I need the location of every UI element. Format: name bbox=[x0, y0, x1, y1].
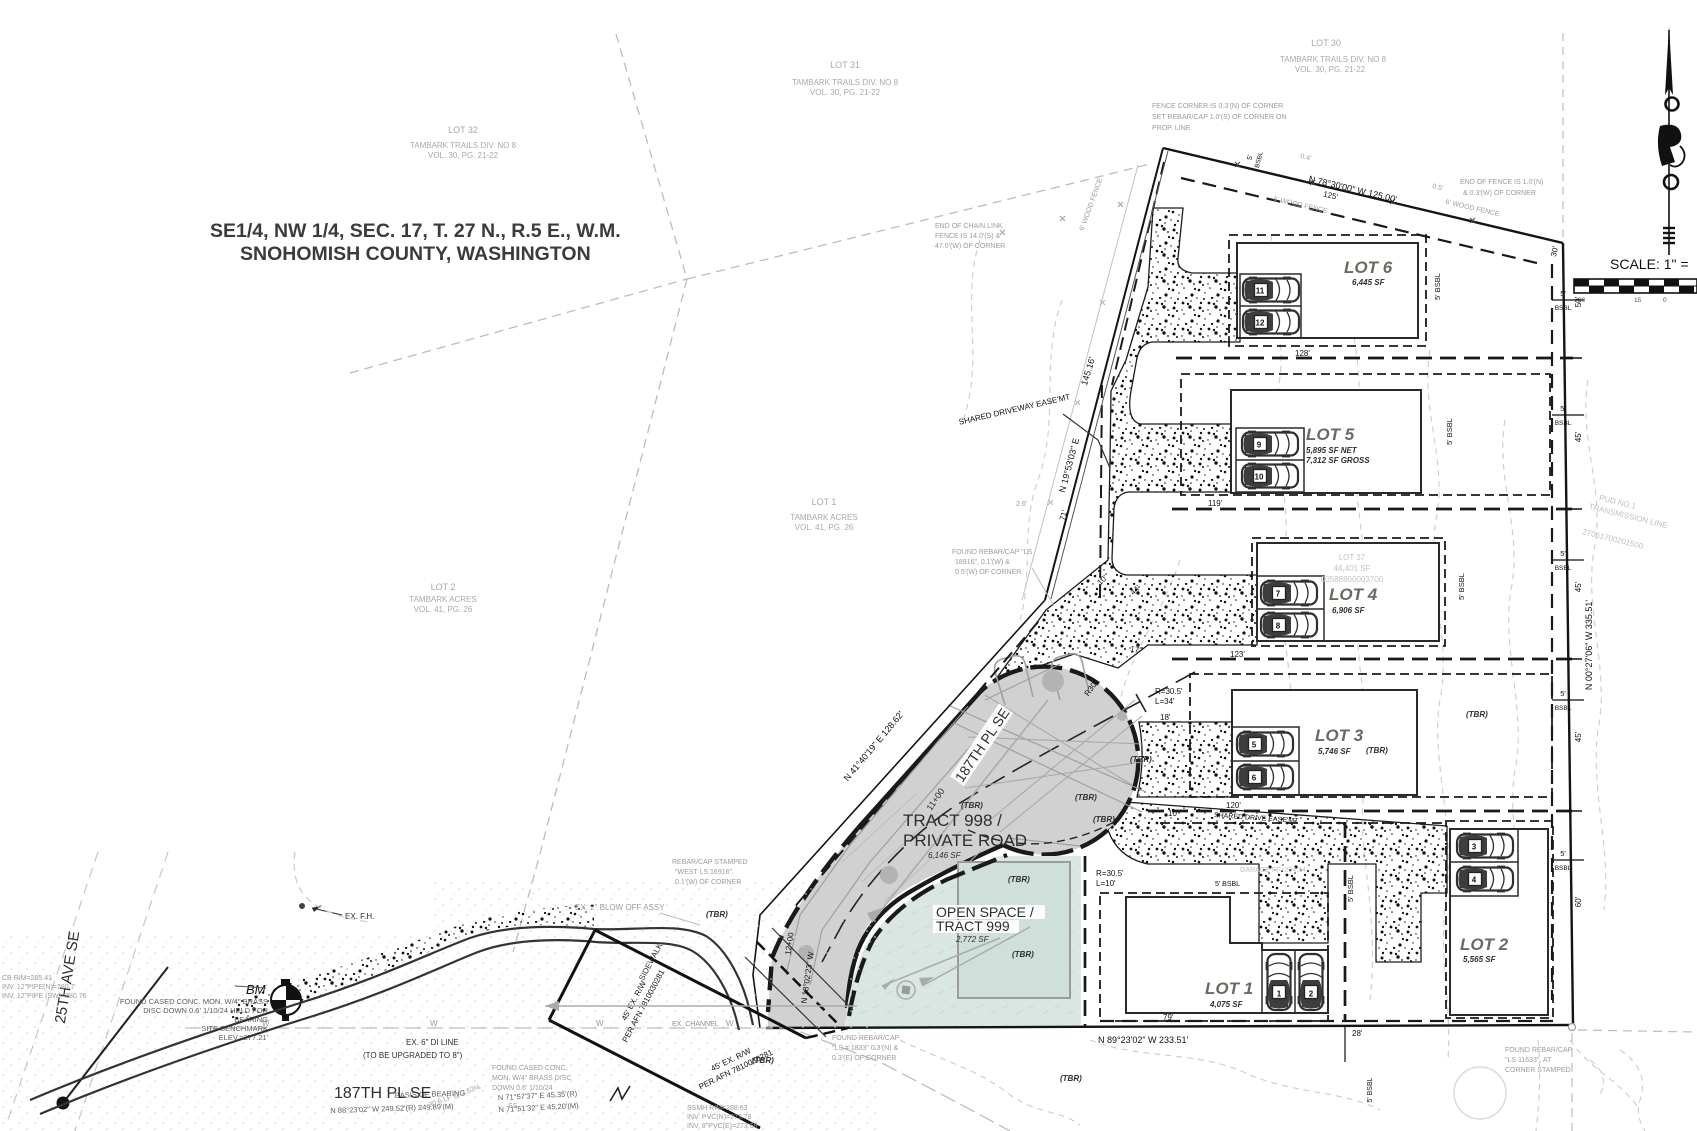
svg-text:TAMBARK TRAILS DIV. NO 8: TAMBARK TRAILS DIV. NO 8 bbox=[410, 141, 517, 150]
svg-text:BSBL: BSBL bbox=[1555, 705, 1572, 712]
svg-text:FOUND REBAR/CAP: FOUND REBAR/CAP bbox=[832, 1035, 900, 1042]
svg-text:6' WOOD FENCE: 6' WOOD FENCE bbox=[1273, 196, 1329, 215]
svg-text:5' BSBL: 5' BSBL bbox=[1445, 418, 1454, 445]
svg-text:79': 79' bbox=[1163, 1013, 1174, 1022]
svg-text:VOL. 30, PG. 21-22: VOL. 30, PG. 21-22 bbox=[1295, 65, 1366, 74]
svg-text:60': 60' bbox=[1574, 896, 1583, 907]
svg-text:(TBR): (TBR) bbox=[1008, 875, 1030, 884]
svg-text:LOT 4: LOT 4 bbox=[1329, 585, 1378, 604]
svg-text:5': 5' bbox=[1560, 689, 1566, 698]
svg-text:TRACT 998 /: TRACT 998 / bbox=[903, 811, 1002, 830]
svg-text:W: W bbox=[596, 1019, 604, 1028]
svg-text:(TBR): (TBR) bbox=[1012, 950, 1034, 959]
svg-text:125': 125' bbox=[1322, 189, 1339, 201]
svg-text:5': 5' bbox=[1560, 849, 1566, 858]
svg-text:6,146 SF: 6,146 SF bbox=[928, 851, 962, 860]
svg-text:(TBR): (TBR) bbox=[1130, 755, 1152, 764]
svg-text:FENCE IS 14.0'(S) &: FENCE IS 14.0'(S) & bbox=[935, 233, 1000, 240]
svg-text:BSBL: BSBL bbox=[1555, 865, 1572, 872]
svg-text:L=10': L=10' bbox=[1096, 879, 1116, 888]
svg-text:7,312 SF GROSS: 7,312 SF GROSS bbox=[1306, 456, 1370, 465]
svg-text:4,075 SF: 4,075 SF bbox=[1209, 1000, 1244, 1009]
svg-text:TAMBARK TRAILS DIV. NO 8: TAMBARK TRAILS DIV. NO 8 bbox=[1280, 55, 1387, 64]
svg-text:28': 28' bbox=[1352, 1029, 1363, 1038]
svg-text:5' BSBL: 5' BSBL bbox=[1457, 573, 1466, 600]
svg-text:5,565 SF: 5,565 SF bbox=[1463, 955, 1497, 964]
svg-text:TAMBARK TRAILS DIV. NO 8: TAMBARK TRAILS DIV. NO 8 bbox=[792, 78, 899, 87]
svg-text:R=30.5': R=30.5' bbox=[1155, 687, 1183, 696]
svg-text:128': 128' bbox=[1295, 349, 1310, 358]
svg-text:"LS # 1833" 0.3'(N) &: "LS # 1833" 0.3'(N) & bbox=[832, 1045, 899, 1052]
svg-text:5': 5' bbox=[1560, 549, 1566, 558]
svg-text:27051700201500: 27051700201500 bbox=[1582, 527, 1645, 551]
svg-text:145.16': 145.16' bbox=[1079, 355, 1097, 386]
svg-text:(TBR): (TBR) bbox=[961, 801, 983, 810]
svg-text:(TBR): (TBR) bbox=[1466, 710, 1488, 719]
svg-text:FENCE CORNER IS 0.3'(N) OF COR: FENCE CORNER IS 0.3'(N) OF CORNER bbox=[1152, 103, 1283, 110]
svg-text:SSMH RIM=288.63: SSMH RIM=288.63 bbox=[687, 1105, 748, 1112]
svg-text:6,445 SF: 6,445 SF bbox=[1352, 278, 1386, 287]
svg-text:187TH PL SE: 187TH PL SE bbox=[334, 1085, 431, 1102]
svg-text:BM: BM bbox=[246, 982, 266, 997]
svg-text:R=30.5': R=30.5' bbox=[1096, 869, 1124, 878]
svg-text:(TBR): (TBR) bbox=[752, 1056, 774, 1065]
svg-text:INV. PVC(N)=273.78: INV. PVC(N)=273.78 bbox=[687, 1114, 752, 1121]
svg-text:FOUND CASED CONC. MON. W/4" BR: FOUND CASED CONC. MON. W/4" BRASS bbox=[120, 997, 268, 1006]
svg-text:W: W bbox=[430, 1019, 438, 1028]
svg-text:123': 123' bbox=[1230, 650, 1245, 659]
svg-text:W: W bbox=[726, 1019, 734, 1028]
svg-text:5' BSBL: 5' BSBL bbox=[1215, 881, 1240, 888]
svg-text:15: 15 bbox=[1634, 297, 1642, 304]
svg-text:5': 5' bbox=[1560, 404, 1566, 413]
svg-text:CB RIM=285.41: CB RIM=285.41 bbox=[2, 975, 52, 982]
svg-text:INV. 12"PIPE(N)=280.7: INV. 12"PIPE(N)=280.7 bbox=[2, 984, 75, 991]
svg-text:VOL. 41, PG. 26: VOL. 41, PG. 26 bbox=[795, 523, 854, 532]
svg-text:LOT 1: LOT 1 bbox=[812, 497, 837, 507]
svg-text:(TO BE UPGRADED TO 8"): (TO BE UPGRADED TO 8") bbox=[363, 1051, 463, 1060]
svg-text:SCALE: 1" =: SCALE: 1" = bbox=[1610, 256, 1689, 272]
svg-text:1: 1 bbox=[1277, 990, 1282, 999]
svg-text:5: 5 bbox=[1252, 741, 1257, 750]
svg-text:EX. 2" BLOW OFF ASSY: EX. 2" BLOW OFF ASSY bbox=[575, 903, 665, 912]
svg-text:LOT 3: LOT 3 bbox=[1315, 726, 1364, 745]
svg-text:VOL. 41, PG. 26: VOL. 41, PG. 26 bbox=[414, 605, 473, 614]
svg-text:119': 119' bbox=[1208, 499, 1223, 508]
svg-text:5' BSBL: 5' BSBL bbox=[1433, 273, 1442, 300]
svg-text:6,906 SF: 6,906 SF bbox=[1332, 606, 1366, 615]
svg-text:5,895 SF NET: 5,895 SF NET bbox=[1306, 446, 1358, 455]
svg-text:4: 4 bbox=[1472, 876, 1477, 885]
svg-text:10: 10 bbox=[1255, 473, 1264, 482]
svg-text:"LS 11633", AT: "LS 11633", AT bbox=[1505, 1057, 1552, 1064]
svg-text:TAMBARK ACRES: TAMBARK ACRES bbox=[790, 513, 857, 522]
svg-text:10': 10' bbox=[1168, 809, 1179, 818]
svg-text:BSBL: BSBL bbox=[1555, 420, 1572, 427]
svg-text:7: 7 bbox=[1276, 590, 1281, 599]
svg-text:MON. W/4" BRASS DISC: MON. W/4" BRASS DISC bbox=[492, 1075, 572, 1082]
svg-text:LOT 5: LOT 5 bbox=[1306, 425, 1355, 444]
svg-text:N 00°27'06" W 335.51': N 00°27'06" W 335.51' bbox=[1584, 600, 1594, 691]
svg-text:"WEST LS 16916",: "WEST LS 16916", bbox=[675, 869, 734, 876]
svg-text:(TBR): (TBR) bbox=[1366, 746, 1388, 755]
svg-text:6' WOOD FENCE: 6' WOOD FENCE bbox=[1079, 177, 1105, 232]
svg-text:0.4': 0.4' bbox=[1300, 153, 1312, 162]
svg-text:SHARED DRIVEWAY EASE'MT: SHARED DRIVEWAY EASE'MT bbox=[958, 392, 1071, 426]
svg-text:DISC DOWN 0.6' 1/10/24 HELD FO: DISC DOWN 0.6' 1/10/24 HELD FOR bbox=[143, 1006, 268, 1015]
svg-text:(TBR): (TBR) bbox=[1093, 815, 1115, 824]
svg-text:120': 120' bbox=[1226, 801, 1241, 810]
svg-text:END OF FENCE IS 1.0'(N): END OF FENCE IS 1.0'(N) bbox=[1460, 179, 1543, 186]
svg-text:5,746 SF: 5,746 SF bbox=[1318, 747, 1352, 756]
svg-text:11: 11 bbox=[1256, 287, 1265, 296]
svg-text:45': 45' bbox=[1574, 581, 1583, 592]
svg-text:0.3'(E) OF CORNER: 0.3'(E) OF CORNER bbox=[832, 1055, 896, 1062]
svg-text:PROP. LINE: PROP. LINE bbox=[1152, 125, 1191, 132]
svg-text:BSBL: BSBL bbox=[1254, 151, 1265, 169]
svg-text:LOT 31: LOT 31 bbox=[830, 60, 860, 70]
svg-text:LOT 1: LOT 1 bbox=[1205, 979, 1253, 998]
svg-text:EX. 6" DI LINE: EX. 6" DI LINE bbox=[406, 1038, 459, 1047]
svg-text:GARAGE FF=294.14: GARAGE FF=294.14 bbox=[1240, 867, 1306, 874]
svg-text:SS: SS bbox=[508, 1103, 518, 1110]
svg-text:12: 12 bbox=[1256, 319, 1265, 328]
svg-text:0.5': 0.5' bbox=[1432, 183, 1444, 192]
svg-text:2,772 SF: 2,772 SF bbox=[955, 935, 990, 944]
svg-text:EX. F.H.: EX. F.H. bbox=[345, 912, 374, 921]
svg-text:LOT 30: LOT 30 bbox=[1311, 38, 1341, 48]
svg-text:END OF CHAIN LINK: END OF CHAIN LINK bbox=[935, 223, 1003, 230]
svg-text:N 41°40'19" E 128.62': N 41°40'19" E 128.62' bbox=[842, 709, 906, 783]
svg-text:N 19°53'03" E: N 19°53'03" E bbox=[1057, 437, 1081, 494]
svg-text:FOUND CASED CONC.: FOUND CASED CONC. bbox=[492, 1065, 568, 1072]
svg-text:9: 9 bbox=[1257, 441, 1262, 450]
svg-text:SE1/4, NW 1/4, SEC. 17, T. 27: SE1/4, NW 1/4, SEC. 17, T. 27 N., R.5 E.… bbox=[210, 220, 621, 242]
svg-text:17': 17' bbox=[1130, 644, 1142, 655]
svg-text:47.0'(W) OF CORNER: 47.0'(W) OF CORNER bbox=[935, 243, 1005, 250]
svg-text:18916", 0.1'(W) &: 18916", 0.1'(W) & bbox=[955, 559, 1010, 566]
svg-text:INV. 12"PIPE (SW)=280.76: INV. 12"PIPE (SW)=280.76 bbox=[2, 993, 87, 1000]
svg-text:5': 5' bbox=[1247, 154, 1255, 161]
svg-text:FOUND REBAR/CAP "LS: FOUND REBAR/CAP "LS bbox=[952, 549, 1032, 556]
svg-text:BSBL: BSBL bbox=[1555, 305, 1572, 312]
svg-text:TRACT 999: TRACT 999 bbox=[936, 918, 1010, 934]
svg-text:PRIVATE ROAD: PRIVATE ROAD bbox=[903, 831, 1027, 850]
svg-text:EX. CHANNEL: EX. CHANNEL bbox=[672, 1021, 719, 1028]
svg-text:0: 0 bbox=[1663, 297, 1667, 304]
svg-text:44,401 SF: 44,401 SF bbox=[1334, 564, 1371, 573]
svg-text:BSBL: BSBL bbox=[1555, 565, 1572, 572]
svg-text:(TBR): (TBR) bbox=[706, 910, 728, 919]
svg-text:INV. 8"PVC(E)=273.68: INV. 8"PVC(E)=273.68 bbox=[687, 1123, 758, 1130]
svg-text:2.6': 2.6' bbox=[1016, 501, 1027, 508]
svg-text:00588800003700: 00588800003700 bbox=[1321, 575, 1384, 584]
svg-text:LOT 6: LOT 6 bbox=[1344, 258, 1393, 277]
svg-text:LOT 32: LOT 32 bbox=[448, 125, 478, 135]
svg-text:(TBR): (TBR) bbox=[1060, 1074, 1082, 1083]
svg-text:18': 18' bbox=[1160, 713, 1171, 722]
svg-text:(TBR): (TBR) bbox=[1075, 793, 1097, 802]
svg-text:45': 45' bbox=[1574, 731, 1583, 742]
svg-text:SET REBAR/CAP 1.0'(S) OF CORNE: SET REBAR/CAP 1.0'(S) OF CORNER ON bbox=[1152, 114, 1287, 121]
svg-text:VOL. 30, PG. 21-22: VOL. 30, PG. 21-22 bbox=[428, 151, 499, 160]
svg-text:0.1'(W) OF CORNER: 0.1'(W) OF CORNER bbox=[675, 879, 741, 886]
svg-text:N 78°30'00" W 125.00': N 78°30'00" W 125.00' bbox=[1308, 174, 1398, 205]
svg-text:6: 6 bbox=[1252, 774, 1257, 783]
svg-text:6' WOOD FENCE: 6' WOOD FENCE bbox=[1445, 199, 1501, 218]
svg-text:TAMBARK ACRES: TAMBARK ACRES bbox=[409, 595, 476, 604]
svg-text:5': 5' bbox=[1560, 289, 1566, 298]
svg-text:SNOHOMISH COUNTY, WASHINGTON: SNOHOMISH COUNTY, WASHINGTON bbox=[240, 243, 591, 265]
svg-text:CORNER STAMPED: CORNER STAMPED bbox=[1505, 1067, 1571, 1074]
svg-text:REBAR/CAP STAMPED: REBAR/CAP STAMPED bbox=[672, 859, 748, 866]
svg-text:30': 30' bbox=[1549, 245, 1560, 258]
svg-text:& 0.3'(W) OF CORNER: & 0.3'(W) OF CORNER bbox=[1463, 190, 1536, 197]
svg-text:LOT 37: LOT 37 bbox=[1339, 553, 1366, 562]
svg-text:5' BSBL: 5' BSBL bbox=[1367, 1077, 1374, 1102]
svg-text:0.5'(W) OF CORNER: 0.5'(W) OF CORNER bbox=[955, 569, 1021, 576]
svg-text:30: 30 bbox=[1578, 297, 1586, 304]
svg-text:5' BSBL: 5' BSBL bbox=[1346, 875, 1355, 902]
svg-text:LOT 2: LOT 2 bbox=[1460, 935, 1509, 954]
svg-text:3: 3 bbox=[1472, 843, 1477, 852]
svg-text:45': 45' bbox=[1574, 431, 1583, 442]
svg-text:N 89°23'02" W 233.51': N 89°23'02" W 233.51' bbox=[1098, 1035, 1189, 1045]
svg-text:8: 8 bbox=[1276, 622, 1281, 631]
svg-text:2: 2 bbox=[1309, 990, 1314, 999]
svg-text:L=34': L=34' bbox=[1155, 697, 1175, 706]
svg-text:LOT 2: LOT 2 bbox=[431, 582, 456, 592]
svg-text:VOL. 30, PG. 21-22: VOL. 30, PG. 21-22 bbox=[810, 88, 881, 97]
